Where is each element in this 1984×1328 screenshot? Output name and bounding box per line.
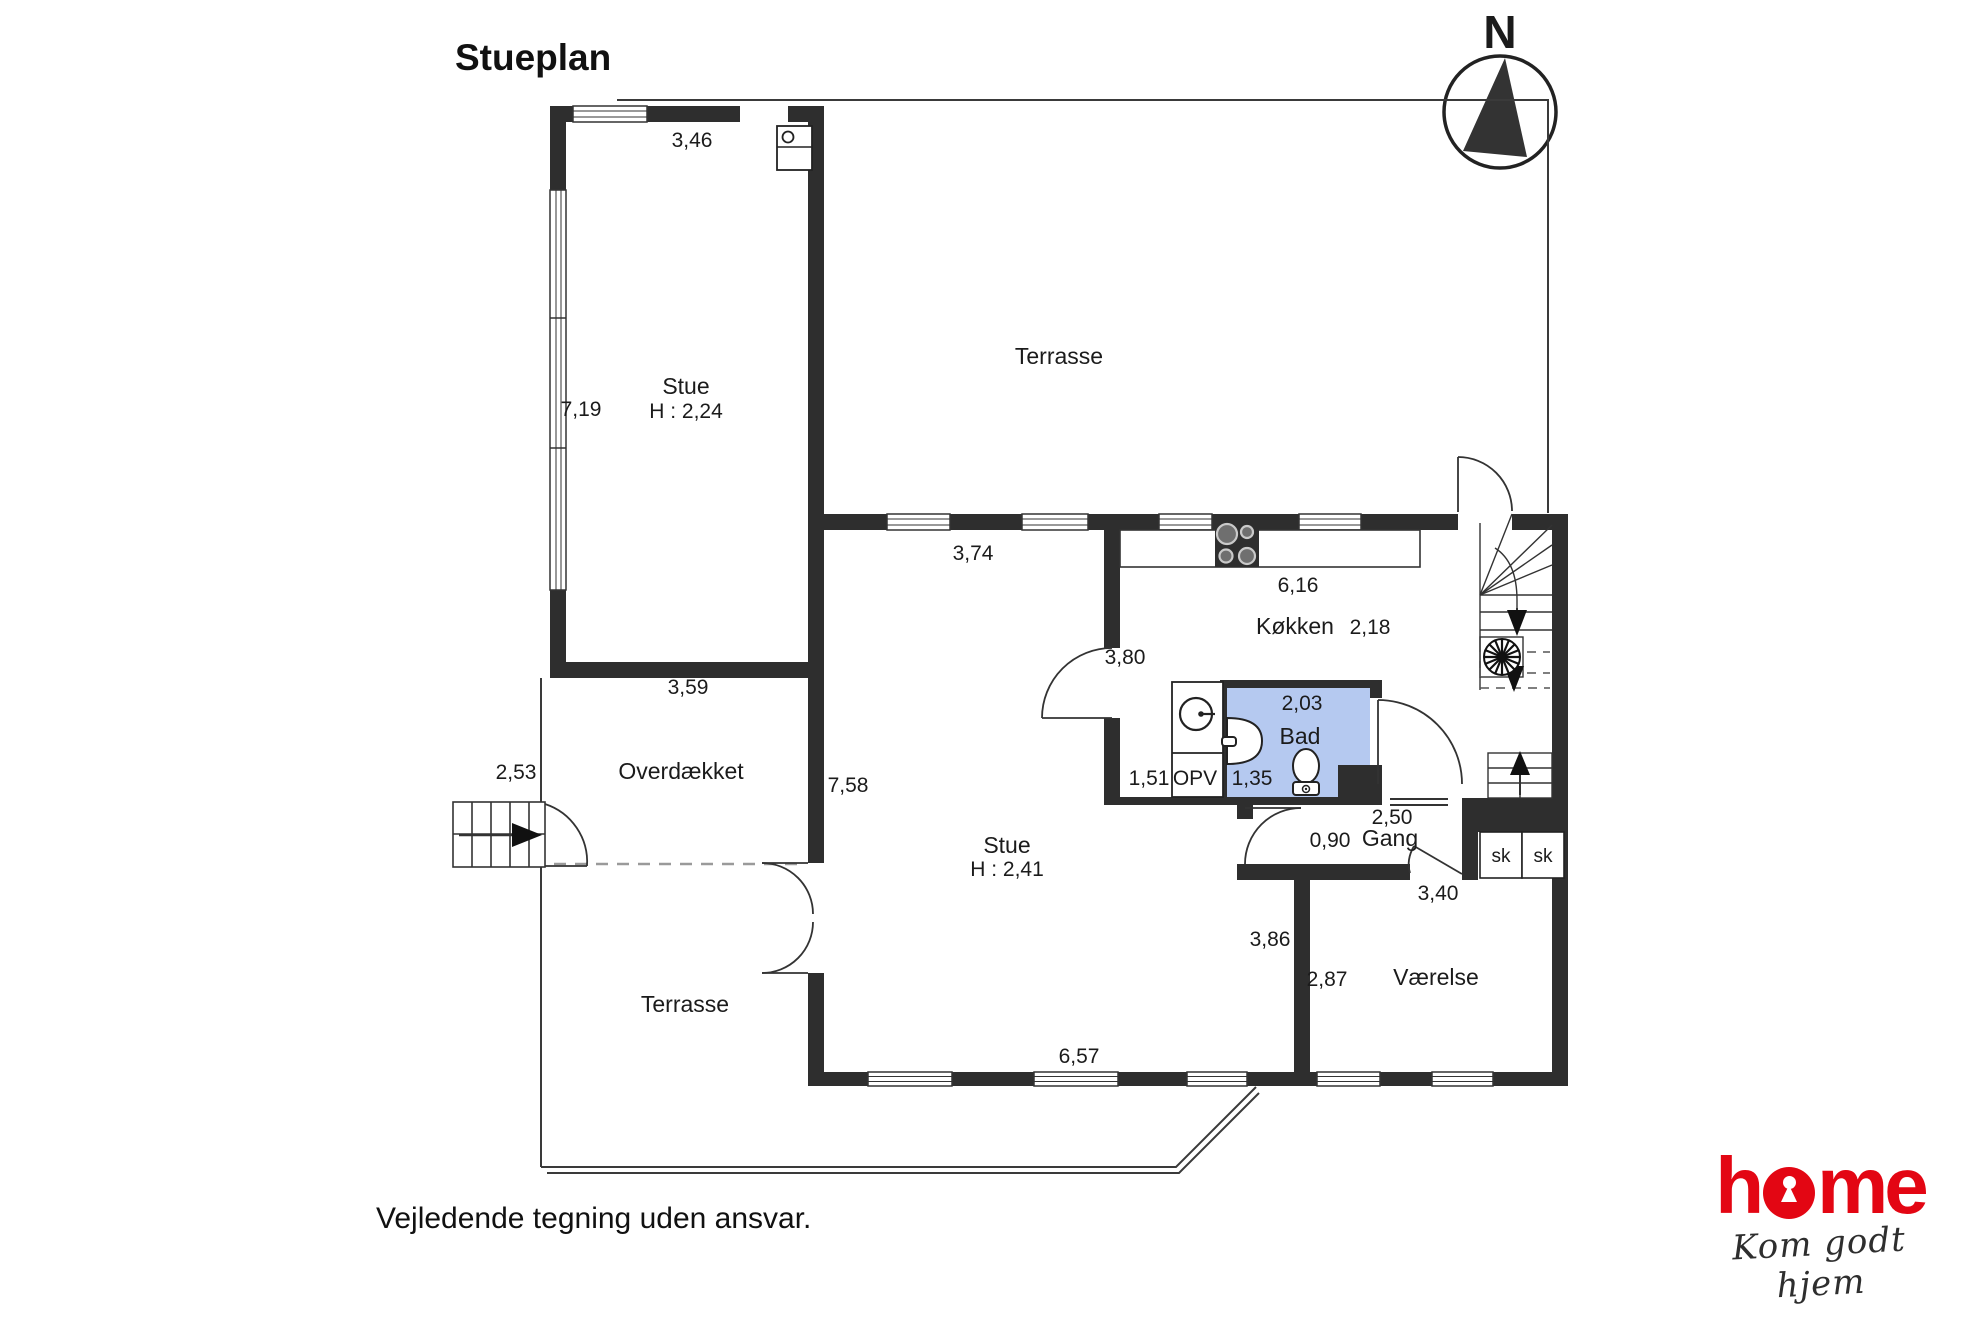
dim-vaerelse-top: 3,40 — [1418, 882, 1459, 905]
home-brand: hme — [1700, 1150, 1940, 1222]
window — [573, 106, 647, 122]
outside-stairs — [453, 802, 545, 867]
stove-icon — [777, 126, 812, 170]
window — [1187, 1072, 1247, 1086]
entry-door — [1458, 457, 1512, 512]
wall — [1370, 688, 1382, 698]
room-label-stue-main: Stue — [983, 832, 1030, 858]
small-stairs — [1488, 751, 1552, 798]
floor-plan: Stueplan N — [0, 0, 1984, 1323]
window — [1159, 514, 1212, 530]
room-label-overdaekket: Overdækket — [618, 758, 744, 784]
terrace-top-outline — [617, 100, 1548, 513]
brand-h: h — [1715, 1150, 1760, 1222]
dim-stue-right: 3,86 — [1250, 928, 1291, 951]
room-labels: Stue H : 2,24 Terrasse Køkken Bad OPV Ga… — [618, 343, 1553, 1017]
disclaimer-text: Vejledende tegning uden ansvar. — [376, 1202, 811, 1235]
dim-overdaekket: 3,59 — [668, 676, 709, 699]
stairs-down-arrow — [1507, 610, 1527, 636]
dim-annex-width: 3,46 — [672, 129, 713, 152]
window — [1317, 1072, 1380, 1086]
wall — [1104, 718, 1120, 805]
window — [550, 190, 566, 590]
wall — [1338, 765, 1382, 805]
kitchen-door — [1042, 648, 1112, 718]
brand-me: me — [1817, 1150, 1925, 1222]
north-label: N — [1483, 6, 1516, 58]
north-arrow-icon — [1463, 58, 1527, 157]
dim-kitchen-width: 6,16 — [1278, 574, 1319, 597]
wall — [1220, 680, 1382, 688]
closet-label: sk — [1534, 846, 1554, 867]
dimension-labels: 3,46 7,19 3,74 6,16 2,18 3,80 2,03 1,51 … — [496, 129, 1459, 1068]
compass: N — [1444, 6, 1556, 168]
window — [1022, 514, 1088, 530]
home-tagline: Kom godt hjem — [1698, 1218, 1942, 1310]
dim-bad-inner: 1,35 — [1232, 767, 1273, 790]
dim-opv-left: 1,51 — [1129, 767, 1170, 790]
terrace-double-door — [762, 863, 813, 973]
dim-gang-door: 0,90 — [1310, 829, 1351, 852]
dim-kitchen-depth: 2,18 — [1350, 616, 1391, 639]
room-label-bad: Bad — [1280, 723, 1321, 749]
room-label-vaerelse: Værelse — [1393, 964, 1479, 990]
dim-stue-upper: 3,80 — [1105, 646, 1146, 669]
room-label-koekken: Køkken — [1256, 613, 1334, 639]
dim-bad-width: 2,03 — [1282, 692, 1323, 715]
window — [868, 1072, 952, 1086]
ceiling-height-annex: H : 2,24 — [649, 400, 723, 423]
gang-door — [1245, 808, 1301, 864]
dim-stue-bottom: 6,57 — [1059, 1045, 1100, 1068]
home-logo: hme Kom godt hjem — [1700, 1150, 1940, 1304]
page-title: Stueplan — [455, 37, 611, 78]
walls — [550, 106, 1568, 1086]
wall — [1237, 864, 1410, 880]
toilet-icon — [1293, 749, 1319, 795]
wall-opening — [740, 105, 788, 123]
wall — [1104, 530, 1120, 648]
wall — [808, 973, 824, 1086]
wall — [1462, 798, 1568, 832]
ceiling-height-stue-main: H : 2,41 — [970, 858, 1044, 881]
bath-door — [1378, 700, 1462, 784]
kitchen-counter — [1120, 530, 1420, 567]
overdaekket-door — [545, 804, 587, 866]
terrace-bottom-outline — [541, 1087, 1256, 1167]
spiral-stair-icon — [1484, 639, 1520, 675]
window — [1390, 799, 1448, 805]
window — [1432, 1072, 1493, 1086]
room-label-opv: OPV — [1173, 767, 1217, 790]
room-label-terrasse-top: Terrasse — [1015, 343, 1103, 369]
keyhole-icon — [1763, 1167, 1815, 1219]
wall — [1462, 832, 1478, 880]
window — [1034, 1072, 1118, 1086]
dim-annex-height: 7,19 — [561, 398, 602, 421]
interior-stairs — [1480, 514, 1552, 798]
dim-vaerelse-left: 2,87 — [1307, 968, 1348, 991]
windows — [550, 105, 1512, 1086]
dim-outside-stairs: 2,53 — [496, 761, 537, 784]
closet-label: sk — [1492, 846, 1512, 867]
window — [1299, 514, 1361, 530]
dim-stue-top: 3,74 — [953, 542, 994, 565]
dim-gang-width: 2,50 — [1372, 806, 1413, 829]
door-opening — [1458, 513, 1512, 531]
terrace-bottom-outline-inner — [547, 1093, 1259, 1173]
wall — [808, 106, 824, 863]
window — [887, 514, 950, 530]
room-label-stue-annex: Stue — [662, 373, 709, 399]
dim-stue-left: 7,58 — [828, 774, 869, 797]
room-label-terrasse-bottom: Terrasse — [641, 991, 729, 1017]
